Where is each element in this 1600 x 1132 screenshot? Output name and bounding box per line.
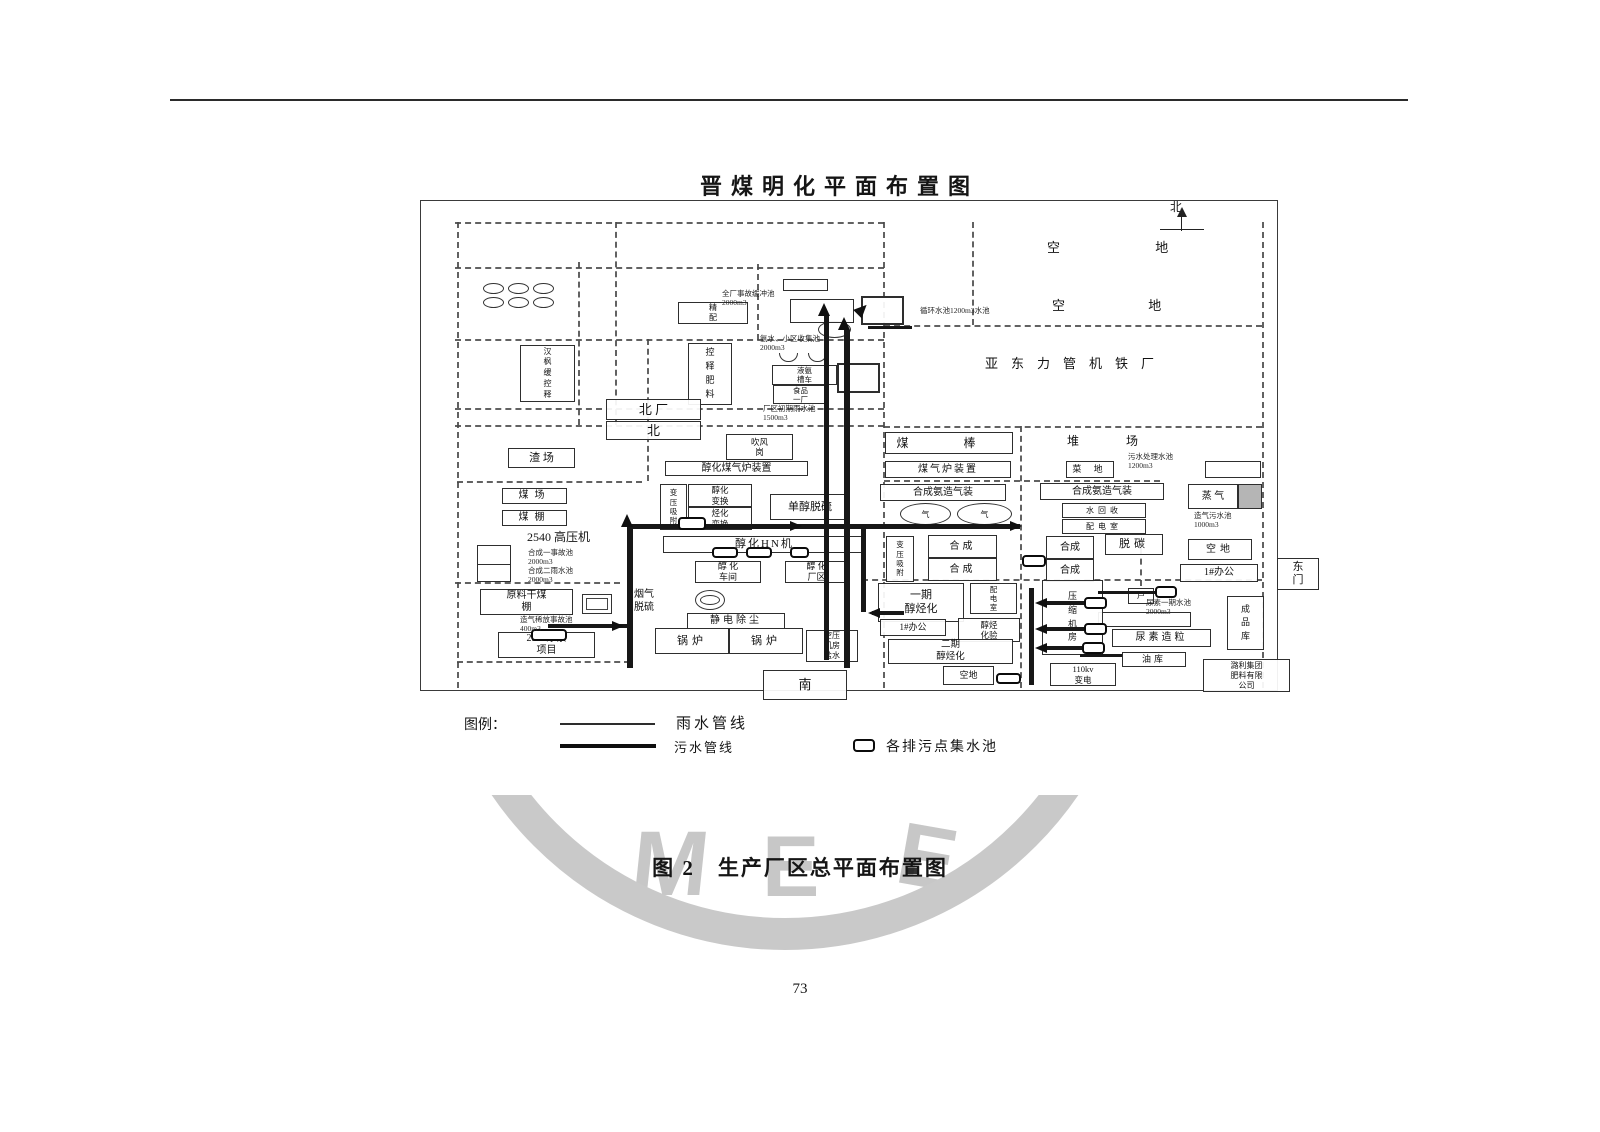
pool-4 [790,547,809,558]
note-chuqi-yushui-pool: 厂区初期雨水池 1500m3 [763,404,816,423]
building-yiqi-chuntinghua: 一期 醇烃化 [878,583,964,622]
building-zhengqi: 蒸 气 [1188,484,1238,509]
arrow-left-1 [868,608,880,618]
label-neighbor-factory: 亚东力管机铁厂 [985,356,1167,372]
label-kongdi-mid: 空 地 [1052,298,1201,314]
building-shipin: 食品 一厂 [773,385,828,404]
building-hecheng-2: 合成 [928,558,997,581]
note-xunhuan-pool: 循环水池1200m3水池 [920,306,990,315]
road-h-325-right [884,325,1262,327]
pipe-sewage-v [844,330,850,668]
note-anshui-pool: 氨水、小区收集池 2000m3 [760,334,820,353]
pool-8 [1084,623,1107,635]
road-v-615 [615,222,617,425]
building-kongshifeiliao: 控 释 肥 料 [688,343,732,405]
box-accident-pool [783,279,828,291]
pool-9 [1082,642,1105,654]
tank-ellipse-2 [508,283,529,294]
note-wushui-pool: 污水处理水池 1200m3 [1128,452,1173,471]
building-bianya-xifu-right: 变 压 吸 附 [886,536,914,582]
tank-ellipse-1 [483,283,504,294]
building-luli-group: 潞利集团 肥料有限 公司 [1203,659,1290,692]
pipe-h-comp2 [1045,627,1087,631]
building-guolu-2: 锅炉 [729,628,803,654]
label-kongdi-top: 空 地 [1047,240,1214,256]
building-tuotan: 脱碳 [1105,534,1163,555]
pipe-h-hu [1098,591,1156,594]
pool-11 [1155,586,1177,598]
building-kongdi-right: 空地 [1188,539,1252,560]
building-hechengqi-left: 合成氨造气装 [880,484,1006,501]
building-meibang: 煤 棒 [885,432,1013,454]
pipe-h-comp3 [1045,646,1087,650]
pool-10 [996,673,1021,684]
building-chuifeng: 吹风 岗 [726,434,793,460]
building-peidianshi-small: 配电室 [1062,519,1146,534]
road-h-480-right [884,480,1160,482]
gate-beichang: 北 厂 [606,399,701,420]
building-hanfeng: 汉 枫 缓 控 释 [520,345,575,402]
building-bangong-left: 1#办公 [880,619,946,636]
building-bangong-right: 1#办公 [1180,564,1258,582]
compass-north-icon: 北 [1150,198,1210,238]
scanned-document-page: 晋煤明化平面布置图 气气精 配汉 枫 缓 控 释控 释 肥 料液氨 槽车食品 一… [0,0,1600,1132]
note-zaoqi-pool: 造气稀放事故池 400m3 [520,615,573,634]
tank-ellipse-3 [533,283,554,294]
tank-ellipse-4 [483,297,504,308]
pipe-v-mid [861,527,866,612]
rain-pipeline-legend-line [560,723,655,725]
road-h-267 [455,267,884,269]
label-duichang: 堆 场 [1067,434,1160,449]
gate-nan: 南 [763,670,847,700]
arrow-left-3 [1035,624,1047,634]
building-chunhua-bianhuan: 醇化 变换 [688,484,752,507]
building-hecheng-3: 合成 [1046,536,1094,559]
arrow-up-2 [838,317,850,330]
gas-holder-2: 气 [957,503,1012,525]
tank-ellipse-6 [533,297,554,308]
gate-dongmen: 东 门 [1277,558,1319,590]
page-top-rule [170,99,1408,101]
sewage-pipeline-legend-line [560,744,656,748]
building-chunhua-changqu: 醇 化 厂区 [785,561,848,583]
plan-title: 晋煤明化平面布置图 [700,169,979,201]
arrow-right-2 [790,521,802,531]
building-kongya-yanshui: 空压 机房 盐水 [806,630,858,662]
pool-5 [1022,555,1046,567]
figure-caption: 图 2 生产厂区总平面布置图 [0,852,1600,882]
building-caidi: 菜 地 [1066,461,1114,478]
arrow-up-3 [621,514,633,527]
building-danchun-tuoliu: 单醇脱硫 [770,494,850,520]
tank-ellipse-5 [508,297,529,308]
building-guolu-1: 锅炉 [655,628,729,654]
building-meipeng: 煤棚 [502,510,567,526]
pipe-h-oil [1080,654,1122,657]
box-small-ne [1205,461,1261,478]
building-kongdi-bottom: 空地 [943,666,994,685]
legend-title: 图例： [464,714,506,734]
building-meichang: 煤场 [502,488,567,504]
legend-sewage-label: 污水管线 [674,737,734,756]
road-h-426-right [884,426,1262,428]
building-meiqilu: 煤气炉装置 [885,461,1011,478]
note-hecheng2-pool: 合成二雨水池 2000m3 [528,566,573,585]
building-chunhua-luzhuang: 醇化煤气炉装置 [665,461,808,476]
arrow-right-1 [612,621,624,631]
watermark-arc-clip [470,795,1100,970]
building-yuanliao-meipeng: 原料干煤 棚 [480,589,573,615]
arrow-right-3 [1010,521,1022,531]
building-erqi-chuntinghua: 二期 醇烃化 [888,639,1013,664]
building-hechengqi-right: 合成氨造气装 [1040,483,1164,500]
tank-double [477,545,511,582]
legend-pool-label: 各排污点集水池 [886,736,998,756]
arrow-up-1 [818,303,830,316]
building-youku: 油库 [1122,652,1186,667]
note-zaoqi-wushui-pool: 造气污水池 1000m3 [1194,511,1232,530]
gas-holder-1: 气 [900,503,951,525]
pool-3 [746,547,772,558]
label-2540-gaoyaji: 2540 高压机 [527,530,590,545]
pool-7 [1084,597,1107,609]
pool-legend-icon [853,739,875,752]
compass-arrow-icon [1177,207,1187,217]
pipe-v-left [627,527,633,668]
building-chunhua-chejian: 醇 化 车间 [695,561,761,583]
pool-2 [712,547,738,558]
note-quanchang-pool: 全厂事故缓冲池 2000m3 [722,289,775,308]
arrow-left-4 [1035,643,1047,653]
pipe-h-comp1 [1045,601,1087,605]
building-peidian-v: 配 电 室 [970,583,1017,614]
building-hecheng-4: 合成 [1046,559,1094,582]
building-hecheng-1: 合成 [928,535,997,558]
arrow-left-2 [1035,598,1047,608]
pool-1 [678,517,706,530]
building-110kv: 110kv 变电 [1050,663,1116,686]
pipe-v-right [1029,588,1034,685]
tank-ring [695,590,725,610]
building-niaosu-zaoli: 尿素造粒 [1112,629,1211,647]
note-hecheng1-pool: 合成一事故池 2000m3 [528,548,573,567]
pipe-rain-v [824,315,829,660]
square-pool [582,594,612,614]
box-gray-fill [1238,484,1262,509]
road-v-457 [457,222,459,688]
page-number: 73 [0,981,1600,998]
road-v-578 [578,262,580,425]
note-niaosu-pool: 尿素一期水池 2000m3 [1146,598,1191,617]
road-h-481 [457,481,642,483]
pipe-h-top [868,326,912,329]
building-jingdian-chuchen: 静电除尘 [687,613,785,629]
road-h-top [455,222,884,224]
road-h-661 [457,661,630,663]
building-shuihuishou: 水回收 [1062,503,1146,518]
building-chengpinku: 成 品 库 [1227,596,1264,650]
gate-bei: 北 [606,421,701,440]
building-zhachang: 渣 场 [508,448,575,468]
legend-rain-label: 雨水管线 [676,712,748,733]
label-yanqi-tuoliu: 烟气 脱硫 [634,589,654,614]
